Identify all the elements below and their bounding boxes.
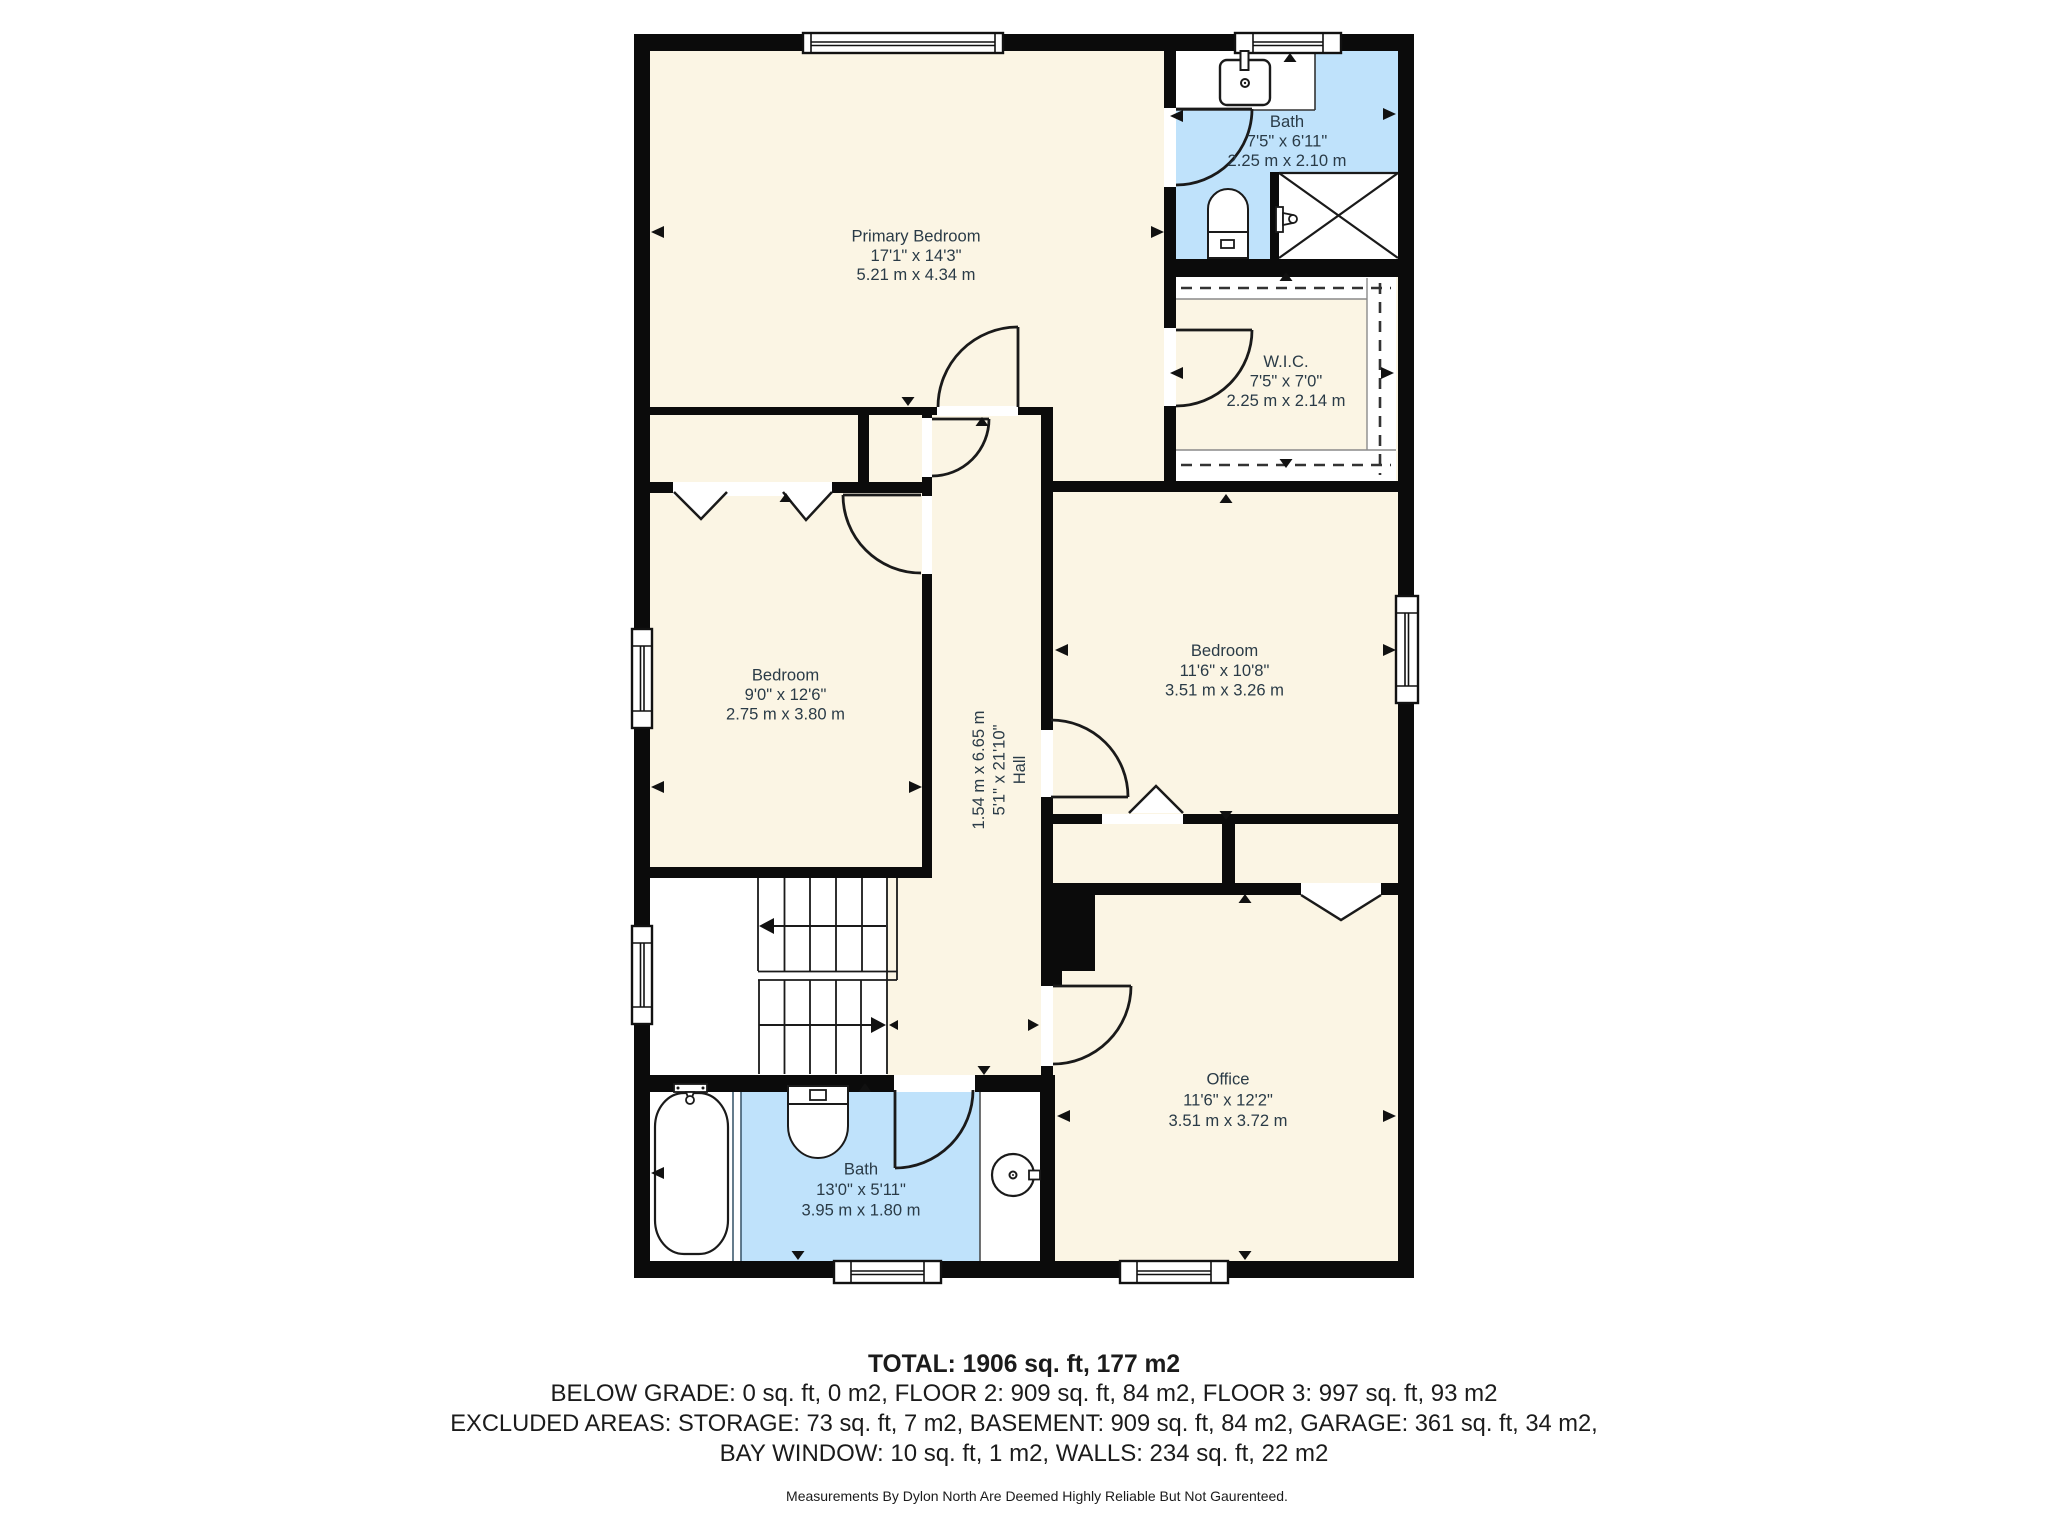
svg-text:Office: Office bbox=[1206, 1070, 1249, 1089]
svg-text:9'0" x 12'6": 9'0" x 12'6" bbox=[745, 685, 827, 704]
svg-text:5.21 m x 4.34 m: 5.21 m x 4.34 m bbox=[857, 265, 976, 284]
svg-text:7'5" x 7'0": 7'5" x 7'0" bbox=[1250, 372, 1323, 391]
svg-text:Bath: Bath bbox=[1270, 112, 1304, 131]
svg-text:W.I.C.: W.I.C. bbox=[1263, 352, 1308, 371]
svg-text:5'1" x 21'10": 5'1" x 21'10" bbox=[990, 724, 1009, 815]
svg-text:BAY WINDOW: 10 sq. ft, 1 m2, W: BAY WINDOW: 10 sq. ft, 1 m2, WALLS: 234 … bbox=[720, 1440, 1329, 1467]
svg-text:13'0" x 5'11": 13'0" x 5'11" bbox=[816, 1180, 906, 1199]
svg-text:2.25 m x 2.14 m: 2.25 m x 2.14 m bbox=[1227, 391, 1346, 410]
svg-text:3.51 m x 3.72 m: 3.51 m x 3.72 m bbox=[1169, 1111, 1288, 1130]
svg-text:BELOW GRADE: 0 sq. ft, 0 m2, F: BELOW GRADE: 0 sq. ft, 0 m2, FLOOR 2: 90… bbox=[550, 1380, 1497, 1407]
svg-text:Bedroom: Bedroom bbox=[752, 666, 819, 685]
svg-text:11'6" x 10'8": 11'6" x 10'8" bbox=[1180, 661, 1270, 680]
svg-text:17'1" x 14'3": 17'1" x 14'3" bbox=[870, 246, 961, 265]
svg-text:2.75 m x 3.80 m: 2.75 m x 3.80 m bbox=[726, 705, 845, 724]
svg-text:TOTAL: 1906 sq. ft, 177 m2: TOTAL: 1906 sq. ft, 177 m2 bbox=[868, 1351, 1180, 1378]
svg-text:7'5" x 6'11": 7'5" x 6'11" bbox=[1247, 132, 1328, 151]
svg-text:3.51 m x 3.26 m: 3.51 m x 3.26 m bbox=[1165, 681, 1284, 700]
svg-text:Bath: Bath bbox=[844, 1160, 878, 1179]
svg-text:1.54 m x 6.65 m: 1.54 m x 6.65 m bbox=[969, 711, 988, 830]
svg-text:Hall: Hall bbox=[1010, 756, 1029, 785]
svg-text:11'6" x 12'2": 11'6" x 12'2" bbox=[1183, 1091, 1273, 1110]
svg-text:Primary Bedroom: Primary Bedroom bbox=[851, 227, 980, 246]
svg-text:EXCLUDED AREAS: STORAGE: 73 sq: EXCLUDED AREAS: STORAGE: 73 sq. ft, 7 m2… bbox=[450, 1411, 1598, 1437]
svg-text:3.95 m x 1.80 m: 3.95 m x 1.80 m bbox=[802, 1201, 921, 1220]
svg-text:2.25 m x 2.10 m: 2.25 m x 2.10 m bbox=[1228, 151, 1347, 170]
svg-text:Measurements By Dylon North Ar: Measurements By Dylon North Are Deemed H… bbox=[786, 1488, 1288, 1504]
svg-text:Bedroom: Bedroom bbox=[1191, 641, 1258, 660]
